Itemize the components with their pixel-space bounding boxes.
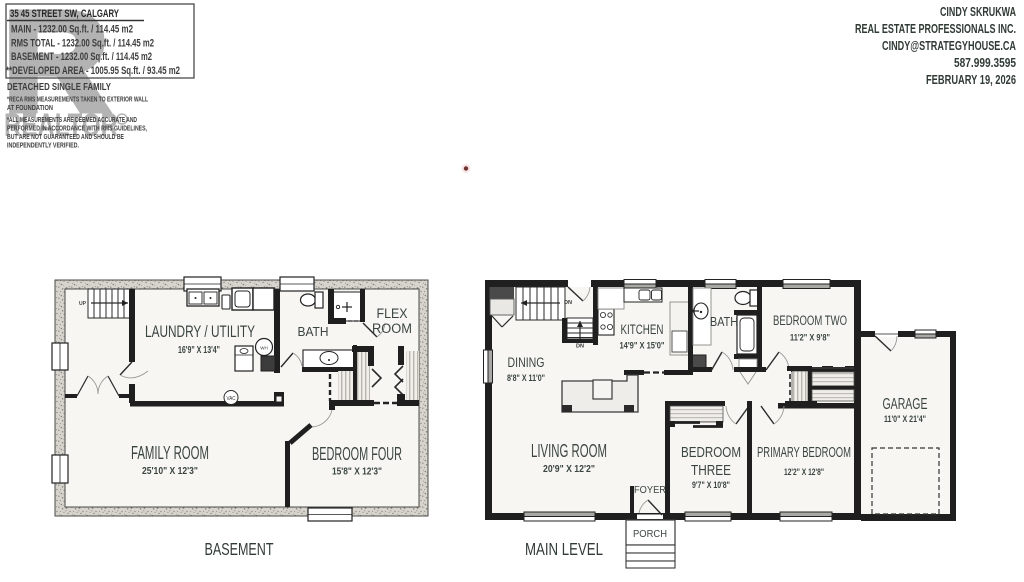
svg-text:11'0" X 21'4": 11'0" X 21'4": [884, 414, 926, 425]
svg-text:GARAGE: GARAGE: [883, 396, 928, 413]
svg-text:ROOM: ROOM: [372, 321, 412, 336]
svg-text:REAL ESTATE PROFESSIONALS INC.: REAL ESTATE PROFESSIONALS INC.: [855, 21, 1016, 36]
svg-text:INDEPENDENTLY VERIFIED.: INDEPENDENTLY VERIFIED.: [7, 141, 79, 150]
svg-text:BASEMENT - 1232.00 Sq.ft. / 11: BASEMENT - 1232.00 Sq.ft. / 114.45 m2: [11, 51, 152, 63]
svg-text:BEDROOM: BEDROOM: [681, 445, 741, 461]
svg-text:WH: WH: [260, 346, 268, 351]
svg-text:PORCH: PORCH: [633, 528, 667, 540]
svg-text:THREE: THREE: [691, 463, 731, 479]
svg-text:FLEX: FLEX: [377, 306, 408, 321]
svg-text:11'2" X 9'8": 11'2" X 9'8": [790, 333, 830, 344]
svg-text:KITCHEN: KITCHEN: [621, 322, 664, 337]
svg-text:FAMILY ROOM: FAMILY ROOM: [131, 442, 209, 463]
svg-text:MAIN - 1232.00 Sq.ft. / 114.45: MAIN - 1232.00 Sq.ft. / 114.45 m2: [11, 24, 133, 36]
svg-text:RMS TOTAL - 1232.00 Sq.ft. / 1: RMS TOTAL - 1232.00 Sq.ft. / 114.45 m2: [11, 38, 154, 50]
svg-text:CINDY@STRATEGYHOUSE.CA: CINDY@STRATEGYHOUSE.CA: [882, 38, 1016, 53]
svg-text:BATH: BATH: [710, 315, 738, 329]
svg-text:DETACHED SINGLE FAMILY: DETACHED SINGLE FAMILY: [7, 81, 111, 93]
svg-text:25'10" X 12'3": 25'10" X 12'3": [142, 466, 198, 477]
svg-text:35 45 STREET SW, CALGARY: 35 45 STREET SW, CALGARY: [10, 8, 119, 20]
svg-text:CINDY SKRUKWA: CINDY SKRUKWA: [940, 4, 1016, 19]
svg-text:AT FOUNDATION: AT FOUNDATION: [7, 103, 53, 112]
svg-text:12'2" X 12'8": 12'2" X 12'8": [784, 467, 824, 478]
svg-text:UP: UP: [79, 301, 86, 307]
svg-text:LIVING ROOM: LIVING ROOM: [531, 441, 607, 461]
svg-text:FEBRUARY 19, 2026: FEBRUARY 19, 2026: [926, 72, 1016, 87]
svg-text:DINING: DINING: [508, 355, 545, 370]
svg-text:DN: DN: [564, 300, 572, 306]
svg-text:9'7" X 10'8": 9'7" X 10'8": [692, 480, 730, 491]
svg-text:20'9" X 12'2": 20'9" X 12'2": [543, 464, 595, 475]
svg-text:MAIN LEVEL: MAIN LEVEL: [525, 539, 603, 559]
svg-text:15'8" X 12'3": 15'8" X 12'3": [332, 467, 382, 478]
svg-text:DN: DN: [576, 344, 584, 350]
svg-text:BEDROOM TWO: BEDROOM TWO: [773, 313, 847, 328]
svg-text:FOYER: FOYER: [634, 484, 666, 496]
svg-text:PRIMARY BEDROOM: PRIMARY BEDROOM: [757, 445, 851, 461]
svg-text:8'8" X 11'0": 8'8" X 11'0": [507, 373, 545, 384]
svg-text:587.999.3595: 587.999.3595: [954, 55, 1016, 70]
svg-text:14'9" X 15'0": 14'9" X 15'0": [620, 341, 665, 352]
svg-text:BATH: BATH: [298, 324, 329, 339]
svg-text:**DEVELOPED AREA - 1005.95 Sq.: **DEVELOPED AREA - 1005.95 Sq.ft. / 93.4…: [6, 65, 180, 77]
svg-text:16'9" X 13'4": 16'9" X 13'4": [178, 345, 220, 356]
svg-text:BEDROOM FOUR: BEDROOM FOUR: [312, 443, 402, 464]
svg-text:VAC: VAC: [227, 396, 236, 402]
svg-text:BASEMENT: BASEMENT: [205, 539, 274, 559]
svg-text:LAUNDRY / UTILITY: LAUNDRY / UTILITY: [145, 323, 255, 341]
